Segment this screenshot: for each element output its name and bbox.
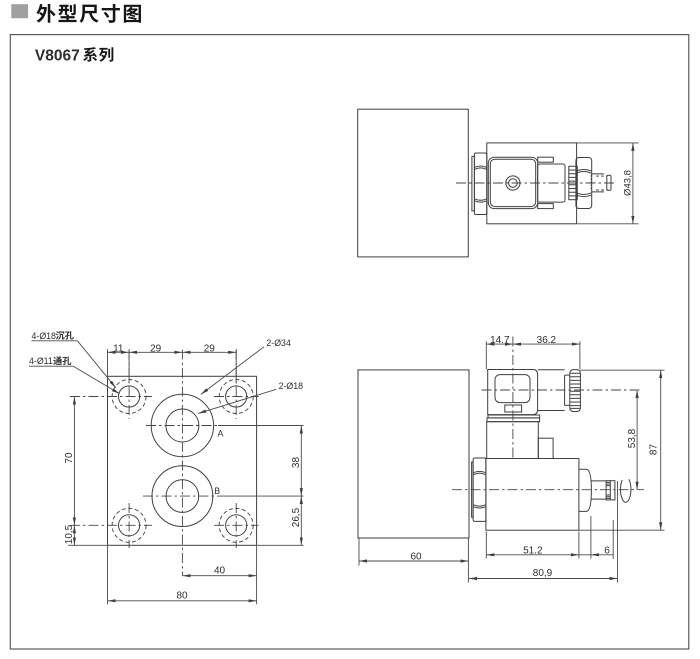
svg-text:29: 29 — [204, 343, 216, 354]
svg-text:26,5: 26,5 — [291, 507, 302, 527]
svg-text:80: 80 — [176, 590, 188, 601]
svg-text:60: 60 — [410, 551, 422, 562]
svg-text:87: 87 — [648, 444, 659, 456]
svg-text:40: 40 — [214, 566, 226, 577]
svg-text:29: 29 — [150, 343, 162, 354]
svg-text:11: 11 — [113, 343, 124, 354]
svg-text:70: 70 — [64, 452, 75, 464]
svg-text:2-Ø18: 2-Ø18 — [279, 381, 304, 391]
svg-text:53,8: 53,8 — [627, 428, 638, 448]
svg-text:A: A — [218, 429, 224, 439]
svg-text:36.2: 36.2 — [537, 335, 557, 346]
svg-text:10,5: 10,5 — [64, 524, 75, 544]
svg-text:4-Ø18: 4-Ø18 — [32, 331, 57, 341]
svg-text:51.2: 51.2 — [523, 545, 543, 556]
svg-text:14.7: 14.7 — [490, 335, 510, 346]
svg-text:B: B — [214, 486, 220, 496]
svg-text:Ø43,8: Ø43,8 — [623, 170, 634, 196]
svg-text:38: 38 — [291, 457, 302, 469]
svg-text:80,9: 80,9 — [533, 568, 553, 579]
svg-text:4-Ø11: 4-Ø11 — [29, 356, 53, 366]
svg-text:V8067: V8067 — [35, 47, 80, 64]
svg-text:2-Ø34: 2-Ø34 — [266, 338, 291, 348]
svg-text:6: 6 — [604, 545, 610, 556]
